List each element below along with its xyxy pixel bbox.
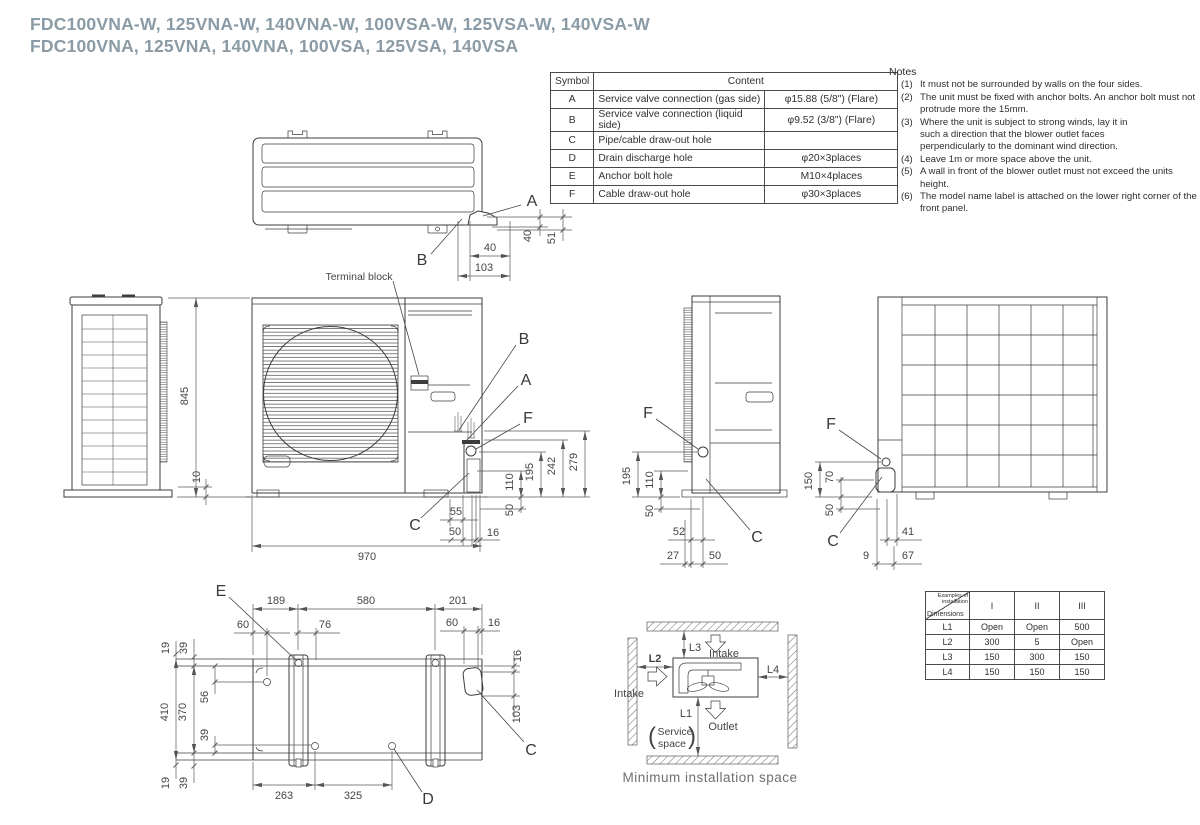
value-cell: 300 — [1015, 650, 1060, 665]
note-text: The model name label is attached on the … — [920, 191, 1200, 216]
drawing-page: FDC100VNA-W, 125VNA-W, 140VNA-W, 100VSA-… — [0, 0, 1200, 825]
drain-hole-d — [312, 743, 319, 750]
symbol-table: Symbol Content A Service valve connectio… — [550, 72, 898, 204]
cable-hole-f — [698, 447, 708, 457]
callout-c: C — [525, 742, 537, 759]
table-row: F Cable draw-out hole φ30×3places — [551, 186, 898, 204]
back-body — [878, 297, 1107, 492]
value-cell: 150 — [1060, 650, 1105, 665]
dim-label: 39 — [199, 729, 211, 741]
cable-hole-f — [466, 446, 476, 456]
value-cell: 150 — [970, 665, 1015, 680]
outlet-label: Outlet — [708, 721, 737, 733]
value-cell: 500 — [1060, 620, 1105, 635]
table-row: D Drain discharge hole φ20×3places — [551, 150, 898, 168]
dim-label: 40 — [522, 230, 534, 242]
desc-cell: Service valve connection (liquid side) — [594, 109, 765, 132]
note-item: (1)It must not be surrounded by walls on… — [889, 79, 1200, 91]
symbol-cell: B — [551, 109, 594, 132]
note-text: It must not be surrounded by walls on th… — [920, 79, 1200, 91]
desc-cell: Service valve connection (gas side) — [594, 91, 765, 109]
symbol-header: Symbol — [551, 73, 594, 91]
dim-label: 50 — [709, 550, 721, 562]
dimensions-label: Dimensions — [927, 611, 964, 618]
table-row: L2 300 5 Open — [926, 635, 1105, 650]
dim-label: 970 — [358, 551, 376, 563]
intake-arrow-left — [648, 667, 667, 686]
coil-strip — [160, 322, 167, 462]
dim-label: 279 — [568, 453, 580, 471]
cable-hole-f — [882, 458, 890, 466]
table-row: A Service valve connection (gas side) φ1… — [551, 91, 898, 109]
dim-label: 51 — [546, 232, 558, 244]
symbol-cell: D — [551, 150, 594, 168]
note-text: A wall in front of the blower outlet mus… — [920, 166, 1200, 191]
note-number: (6) — [901, 191, 920, 216]
dim-label: 263 — [275, 790, 293, 802]
paren-open: ( — [648, 723, 656, 750]
callout-f: F — [523, 410, 533, 427]
value-cell: 300 — [970, 635, 1015, 650]
symbol-cell: C — [551, 132, 594, 150]
outlet-arrow — [706, 701, 726, 719]
top-tab — [288, 131, 307, 138]
callout-e: E — [216, 583, 227, 600]
terminal-block-label: Terminal block — [325, 271, 393, 283]
dim-label: 110 — [644, 471, 656, 489]
dim-label: 16 — [512, 650, 524, 662]
symbol-cell: F — [551, 186, 594, 204]
callout-f: F — [826, 416, 836, 433]
wall-right — [788, 635, 797, 748]
note-item: (2)The unit must be fixed with anchor bo… — [889, 92, 1200, 117]
dim-label: 27 — [667, 550, 679, 562]
side-view-right: F C 195 110 50 52 27 — [621, 296, 787, 568]
min-space-diagram: L3 L2 L4 L1 Intake Intake Outlet ( ) Ser… — [614, 622, 797, 764]
dim-label: 195 — [621, 467, 633, 485]
dim-label: 60 — [237, 619, 249, 631]
wall-top — [647, 622, 778, 631]
col-header: III — [1060, 592, 1105, 620]
dim-label: 410 — [159, 703, 171, 721]
top-tab — [428, 131, 447, 138]
callout-c: C — [409, 517, 421, 534]
dim-label: 110 — [504, 473, 516, 491]
value-cell: Open — [1060, 635, 1105, 650]
dim-label: 50 — [824, 504, 836, 516]
callout-c: C — [827, 533, 839, 550]
dim-label: 50 — [504, 504, 516, 516]
note-item: (3)Where the unit is subject to strong w… — [889, 117, 1200, 154]
service-space-label2: space — [658, 738, 686, 750]
dim-label: 50 — [449, 526, 461, 538]
value-cell: 150 — [1060, 665, 1105, 680]
dim-l4: L4 — [767, 664, 779, 676]
dim-label: 50 — [644, 505, 656, 517]
dim-label: 580 — [357, 595, 375, 607]
value-cell: 150 — [970, 650, 1015, 665]
side-right-body — [692, 296, 780, 493]
value-cell: Open — [970, 620, 1015, 635]
anchor-hole-e — [432, 660, 439, 667]
dim-label: 55 — [450, 506, 462, 518]
dim-label: 19 — [160, 777, 172, 789]
dim-label: 39 — [178, 777, 190, 789]
wall-bottom — [647, 756, 778, 764]
table-row: Examples of installation Dimensions I II… — [926, 592, 1105, 620]
intake-label-top: Intake — [709, 648, 739, 660]
dim-label: 39 — [178, 642, 190, 654]
callout-a: A — [521, 372, 532, 389]
note-item: (6)The model name label is attached on t… — [889, 191, 1200, 216]
desc-cell: Drain discharge hole — [594, 150, 765, 168]
service-space-label: Service — [657, 726, 692, 738]
dim-label: 16 — [487, 527, 499, 539]
dim-label: 189 — [267, 595, 285, 607]
callout-b: B — [519, 331, 530, 348]
note-number: (3) — [901, 117, 920, 154]
table-row: B Service valve connection (liquid side)… — [551, 109, 898, 132]
desc-cell: Anchor bolt hole — [594, 168, 765, 186]
note-number: (4) — [901, 154, 920, 166]
value-cell: 5 — [1015, 635, 1060, 650]
spec-cell — [765, 132, 898, 150]
mount-rail — [426, 655, 445, 766]
dim-cell: L4 — [926, 665, 970, 680]
col-header: II — [1015, 592, 1060, 620]
dim-label: 70 — [824, 471, 836, 483]
dim-label: 19 — [160, 642, 172, 654]
diagonal-header-cell: Examples of installation Dimensions — [926, 592, 970, 620]
note-number: (5) — [901, 166, 920, 191]
dim-label: 56 — [199, 691, 211, 703]
notes-heading: Notes — [889, 66, 1200, 78]
side-view-left — [64, 295, 172, 498]
dim-label: 10 — [191, 471, 203, 483]
pipe-cover — [876, 468, 895, 492]
callout-c: C — [751, 529, 763, 546]
dim-label: 16 — [488, 617, 500, 629]
dim-label: 150 — [803, 472, 815, 490]
symbol-cell: A — [551, 91, 594, 109]
drain-hole-d — [389, 743, 396, 750]
pipe-stubs — [454, 412, 475, 438]
callout-d: D — [422, 791, 434, 808]
dim-label: 325 — [344, 790, 362, 802]
spec-cell: φ9.52 (3/8") (Flare) — [765, 109, 898, 132]
note-text: Leave 1m or more space above the unit. — [920, 154, 1200, 166]
spec-cell: φ30×3places — [765, 186, 898, 204]
dim-label: 60 — [446, 617, 458, 629]
value-cell: Open — [1015, 620, 1060, 635]
intake-label-left: Intake — [614, 688, 644, 700]
callout-b: B — [417, 252, 428, 269]
notes-block: Notes (1)It must not be surrounded by wa… — [889, 66, 1200, 216]
dim-label: 845 — [179, 387, 191, 405]
table-row: C Pipe/cable draw-out hole — [551, 132, 898, 150]
dim-cell: L1 — [926, 620, 970, 635]
dim-l1: L1 — [680, 708, 692, 720]
dim-l3: L3 — [689, 642, 701, 654]
examples-label: Examples of installation — [934, 593, 968, 605]
value-cell: 150 — [1015, 665, 1060, 680]
spec-cell: M10×4places — [765, 168, 898, 186]
note-text: The unit must be fixed with anchor bolts… — [920, 92, 1200, 117]
spec-cell: φ15.88 (5/8") (Flare) — [765, 91, 898, 109]
coil-strip — [684, 308, 692, 462]
min-space-caption: Minimum installation space — [605, 770, 815, 785]
height-dimensions: 845 10 — [168, 298, 250, 505]
valve-cap — [462, 440, 480, 444]
note-number: (2) — [901, 92, 920, 117]
note-item: (4)Leave 1m or more space above the unit… — [889, 154, 1200, 166]
col-header: I — [970, 592, 1015, 620]
table-row: E Anchor bolt hole M10×4places — [551, 168, 898, 186]
dim-label: 103 — [511, 705, 523, 723]
table-row: L4 150 150 150 — [926, 665, 1105, 680]
note-text: Where the unit is subject to strong wind… — [920, 117, 1140, 154]
mount-rail — [289, 655, 308, 766]
draw-out-notch-c — [462, 667, 483, 696]
desc-cell: Cable draw-out hole — [594, 186, 765, 204]
content-header: Content — [594, 73, 898, 91]
dim-label: 41 — [902, 526, 914, 538]
table-row: Symbol Content — [551, 73, 898, 91]
front-view: B A F C Terminal block 110 195 242 279 — [246, 271, 590, 563]
dim-label: 67 — [902, 550, 914, 562]
note-number: (1) — [901, 79, 920, 91]
dim-cell: L3 — [926, 650, 970, 665]
installation-table: Examples of installation Dimensions I II… — [925, 591, 1105, 680]
back-view: F C 150 70 50 41 — [803, 297, 1107, 570]
callout-a: A — [527, 193, 538, 210]
dim-l2: L2 — [649, 653, 662, 665]
dim-cell: L2 — [926, 635, 970, 650]
dim-label: 242 — [546, 457, 558, 475]
dim-label: 103 — [475, 262, 493, 274]
top-view: A B 40 103 40 51 — [253, 131, 572, 281]
base-plate — [64, 490, 172, 497]
dim-label: 9 — [863, 550, 869, 562]
dim-label: 40 — [484, 242, 496, 254]
dim-label: 195 — [524, 463, 536, 481]
note-item: (5)A wall in front of the blower outlet … — [889, 166, 1200, 191]
callout-f: F — [643, 405, 653, 422]
table-row: L3 150 300 150 — [926, 650, 1105, 665]
spec-cell: φ20×3places — [765, 150, 898, 168]
bottom-view: E D C 189 580 201 60 — [159, 583, 537, 808]
dim-label: 201 — [449, 595, 467, 607]
table-row: L1 Open Open 500 — [926, 620, 1105, 635]
dim-label: 52 — [673, 526, 685, 538]
desc-cell: Pipe/cable draw-out hole — [594, 132, 765, 150]
dim-label: 370 — [177, 703, 189, 721]
dim-label: 76 — [319, 619, 331, 631]
symbol-cell: E — [551, 168, 594, 186]
